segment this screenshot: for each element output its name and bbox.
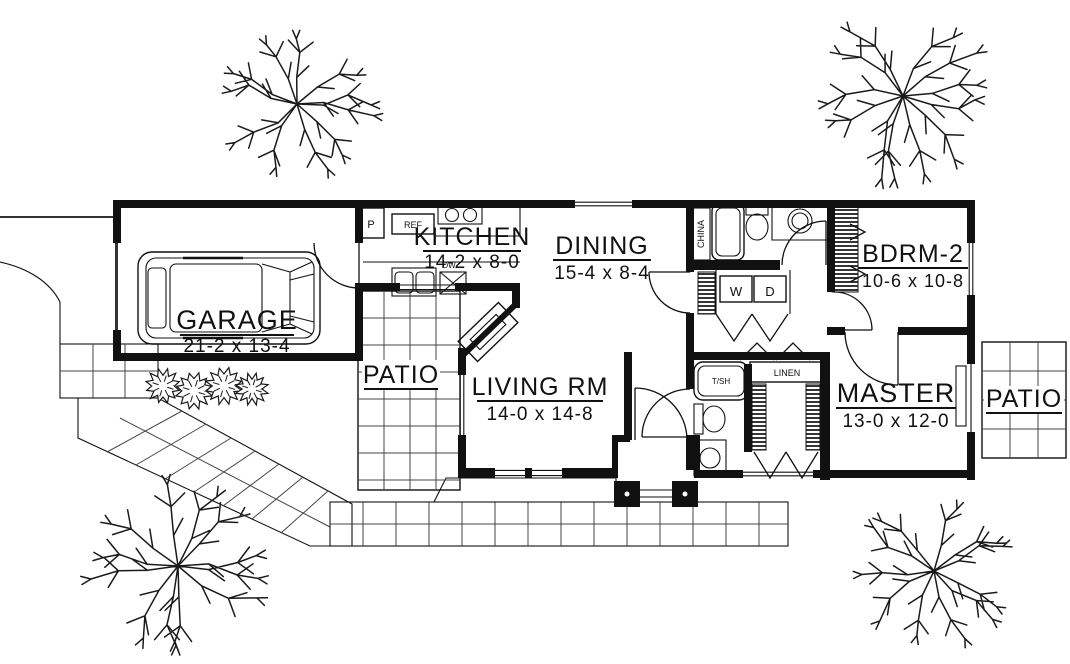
washer-label: W bbox=[730, 284, 743, 299]
floor-plan-page: PATIO PATIO bbox=[0, 0, 1070, 664]
linen-label: LINEN bbox=[774, 368, 801, 378]
master-bathroom: T/SH bbox=[694, 362, 748, 476]
garage-label: GARAGE bbox=[176, 305, 298, 335]
kitchen-label: KITCHEN bbox=[414, 223, 531, 251]
dryer-label: D bbox=[765, 284, 774, 299]
tub-shower-label: T/SH bbox=[712, 377, 730, 386]
tree-top-left bbox=[222, 30, 382, 178]
garage-dims: 21-2 x 13-4 bbox=[183, 336, 290, 357]
car-rear-window bbox=[148, 268, 166, 328]
master-walkin-closet bbox=[752, 384, 820, 478]
planter-strip bbox=[434, 478, 616, 502]
hall-bathroom bbox=[712, 204, 828, 260]
patio-right-label: PATIO bbox=[986, 385, 1062, 413]
master-sink bbox=[700, 448, 720, 468]
entry-porch bbox=[614, 481, 698, 507]
kitchen-dims: 14-2 x 8-0 bbox=[424, 252, 520, 273]
china-label: CHINA bbox=[696, 220, 706, 248]
bathtub bbox=[712, 204, 744, 260]
front-walkway bbox=[330, 502, 788, 546]
patio-left-label: PATIO bbox=[363, 361, 439, 389]
diagonal-walkway bbox=[78, 398, 352, 546]
burner bbox=[446, 209, 459, 222]
bedroom2-dims: 10-6 x 10-8 bbox=[862, 271, 964, 291]
dining-dims: 15-4 x 8-4 bbox=[554, 263, 650, 284]
living-room-label: LIVING RM bbox=[472, 373, 609, 401]
master-label: MASTER bbox=[837, 378, 956, 408]
cooktop bbox=[438, 206, 482, 224]
master-toilet-tank bbox=[694, 404, 703, 434]
bush-1 bbox=[146, 369, 179, 403]
bedroom2-label: BDRM-2 bbox=[862, 240, 964, 268]
entry-steps-landing bbox=[60, 344, 158, 398]
burner bbox=[464, 209, 477, 222]
tree-bottom-left bbox=[81, 475, 268, 656]
master-dims: 13-0 x 12-0 bbox=[842, 411, 949, 432]
bedroom2-door bbox=[834, 292, 872, 330]
patio-left: PATIO bbox=[358, 291, 460, 490]
master-toilet bbox=[703, 406, 725, 432]
dining-hall-door bbox=[649, 272, 690, 313]
garage-door bbox=[115, 243, 118, 330]
living-room-dims: 14-0 x 14-8 bbox=[486, 404, 593, 425]
kitchen-garage-door bbox=[314, 243, 359, 288]
wd-bifold-doors bbox=[716, 314, 788, 341]
washer-dryer-closet: W D bbox=[716, 270, 790, 341]
tree-bottom-right bbox=[853, 500, 1012, 648]
bushes bbox=[146, 368, 268, 409]
tree-top-right bbox=[818, 22, 986, 188]
dining-label: DINING bbox=[555, 232, 649, 260]
linen-closet: LINEN bbox=[750, 362, 824, 382]
patio-right: PATIO bbox=[982, 342, 1066, 458]
driveway bbox=[0, 217, 113, 344]
bedroom2-closet bbox=[832, 206, 865, 292]
master-bath-door bbox=[642, 389, 690, 437]
floor-plan-drawing: PATIO PATIO bbox=[0, 0, 1070, 664]
closet-bifold-doors bbox=[754, 452, 818, 478]
pantry-label: P bbox=[367, 219, 374, 231]
china-cabinet: CHINA bbox=[692, 208, 710, 260]
toilet bbox=[746, 214, 768, 240]
broom-closet bbox=[698, 272, 715, 314]
sliding-door-master-patio bbox=[956, 364, 971, 432]
